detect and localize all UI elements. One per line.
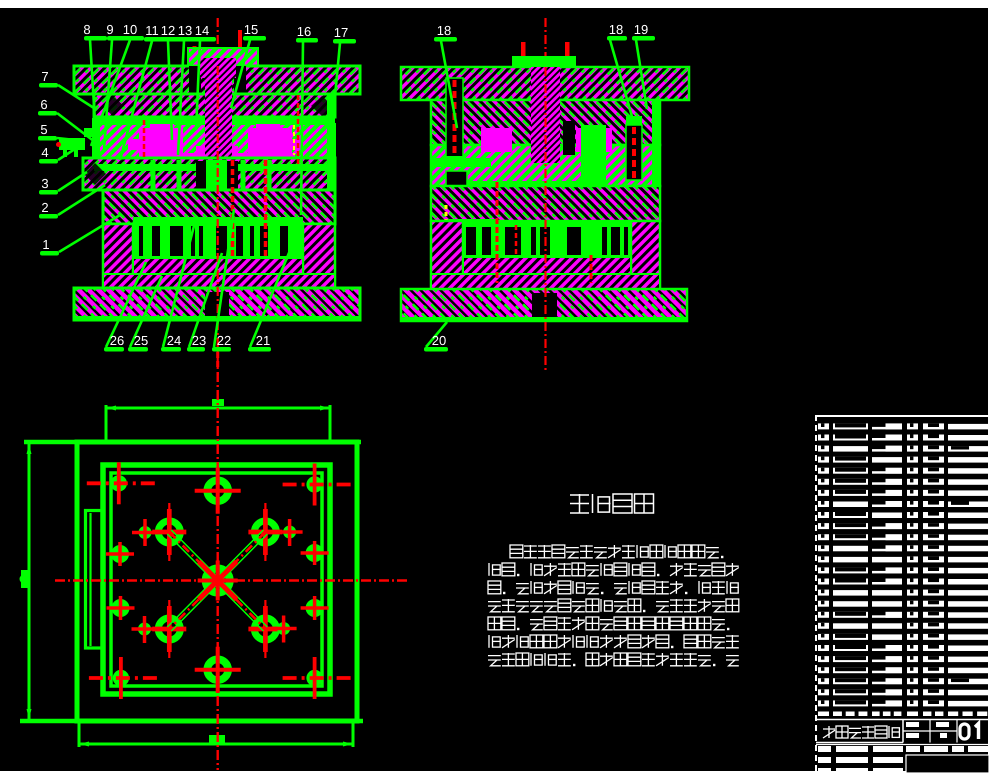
svg-text:15: 15 [244, 22, 258, 37]
svg-text:18: 18 [437, 23, 451, 38]
svg-text:23: 23 [192, 333, 206, 348]
svg-text:13: 13 [178, 23, 192, 38]
svg-text:16: 16 [297, 24, 311, 39]
svg-text:26: 26 [110, 333, 124, 348]
svg-text:11: 11 [145, 23, 159, 38]
svg-text:21: 21 [256, 333, 270, 348]
svg-text:2: 2 [41, 200, 48, 215]
svg-text:14: 14 [195, 23, 209, 38]
svg-text:1: 1 [42, 237, 49, 252]
svg-text:10: 10 [123, 22, 137, 37]
svg-text:24: 24 [167, 333, 181, 348]
svg-text:25: 25 [134, 333, 148, 348]
svg-text:9: 9 [106, 22, 113, 37]
svg-text:22: 22 [217, 333, 231, 348]
svg-text:3: 3 [41, 176, 48, 191]
svg-text:8: 8 [83, 22, 90, 37]
svg-text:4: 4 [41, 145, 48, 160]
svg-text:6: 6 [40, 97, 47, 112]
svg-text:12: 12 [161, 23, 175, 38]
svg-text:18: 18 [609, 22, 623, 37]
svg-text:17: 17 [334, 25, 348, 40]
svg-text:19: 19 [634, 22, 648, 37]
svg-text:5: 5 [40, 122, 47, 137]
svg-text:7: 7 [41, 69, 48, 84]
svg-text:20: 20 [432, 333, 446, 348]
